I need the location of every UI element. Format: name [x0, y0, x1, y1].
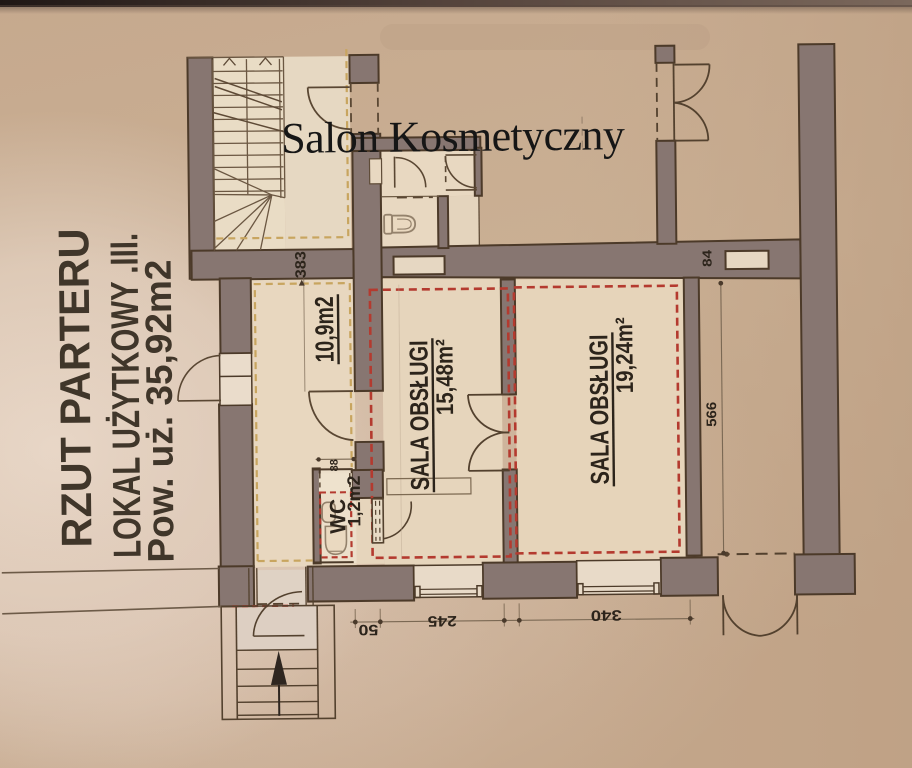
svg-text:50: 50 — [358, 621, 378, 638]
svg-text:340: 340 — [591, 606, 622, 623]
svg-text:1,2m2: 1,2m2 — [344, 475, 365, 526]
svg-text:SALA OBSŁUGI: SALA OBSŁUGI — [403, 340, 435, 490]
svg-text:566: 566 — [703, 402, 719, 427]
svg-text:383: 383 — [292, 251, 309, 278]
svg-text:Pow. uż. 35,92m2: Pow. uż. 35,92m2 — [138, 259, 182, 562]
svg-text:10,9m2: 10,9m2 — [309, 296, 340, 362]
svg-text:19,24m²: 19,24m² — [611, 317, 639, 393]
svg-text:245: 245 — [428, 612, 457, 629]
svg-text:84: 84 — [699, 249, 714, 267]
svg-text:RZUT PARTERU: RZUT PARTERU — [50, 228, 101, 547]
svg-text:88: 88 — [329, 459, 341, 471]
svg-text:15,48m²: 15,48m² — [431, 339, 459, 415]
svg-text:SALA OBSŁUGI: SALA OBSŁUGI — [583, 334, 615, 484]
svg-text:Salon Kosmetyczny: Salon Kosmetyczny — [281, 110, 625, 163]
